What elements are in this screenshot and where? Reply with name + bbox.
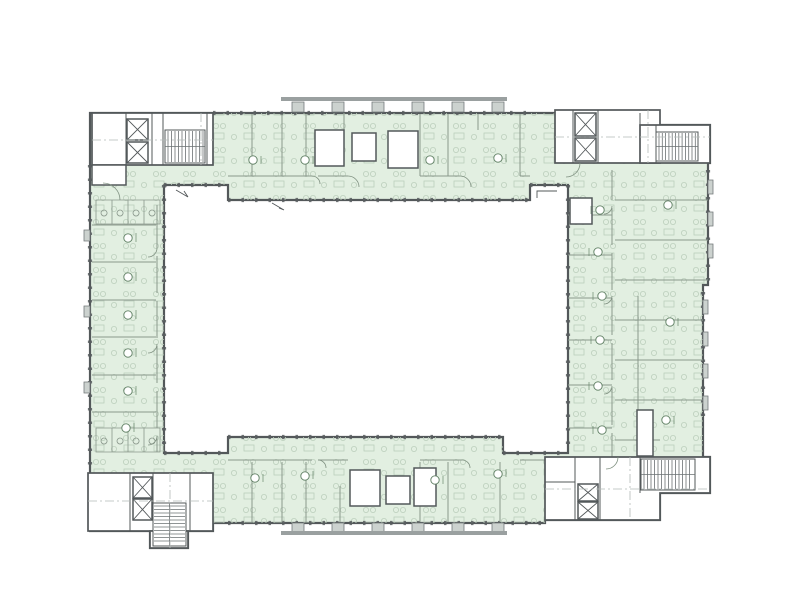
interior-room xyxy=(388,131,418,168)
stair-block-top-right xyxy=(555,110,710,163)
room-marker xyxy=(426,156,434,164)
room-marker xyxy=(666,318,674,326)
interior-room xyxy=(315,130,344,166)
room-marker xyxy=(124,234,132,242)
room-marker xyxy=(494,470,502,478)
room-marker xyxy=(594,382,602,390)
room-marker xyxy=(249,156,257,164)
room-marker xyxy=(301,156,309,164)
window-ticks-courtyard xyxy=(164,185,568,453)
room-marker xyxy=(122,424,130,432)
interior-room xyxy=(414,468,436,506)
interior-room xyxy=(92,165,126,185)
room-marker xyxy=(594,248,602,256)
room-marker xyxy=(596,336,604,344)
roof-parapet-top xyxy=(281,97,507,101)
room-marker xyxy=(251,474,259,482)
room-marker xyxy=(124,349,132,357)
room-marker xyxy=(124,387,132,395)
floor-plan-page xyxy=(0,0,800,601)
interior-room xyxy=(352,133,376,161)
door-swing-arcs xyxy=(103,163,618,469)
room-marker xyxy=(124,311,132,319)
room-marker xyxy=(664,201,672,209)
stair-block-bottom-right xyxy=(545,457,710,520)
interior-room xyxy=(637,410,653,456)
room-marker xyxy=(662,416,670,424)
interior-room xyxy=(386,476,410,504)
room-marker xyxy=(598,292,606,300)
stair-block-bottom-left xyxy=(88,473,213,548)
interior-room xyxy=(570,198,592,224)
room-marker xyxy=(301,472,309,480)
room-marker xyxy=(431,476,439,484)
room-marker xyxy=(124,273,132,281)
room-marker xyxy=(494,154,502,162)
floor-plan-drawing xyxy=(0,0,800,601)
interior-room xyxy=(350,470,380,506)
room-marker xyxy=(596,206,604,214)
room-marker xyxy=(598,426,606,434)
roof-parapet-bottom xyxy=(281,531,507,535)
